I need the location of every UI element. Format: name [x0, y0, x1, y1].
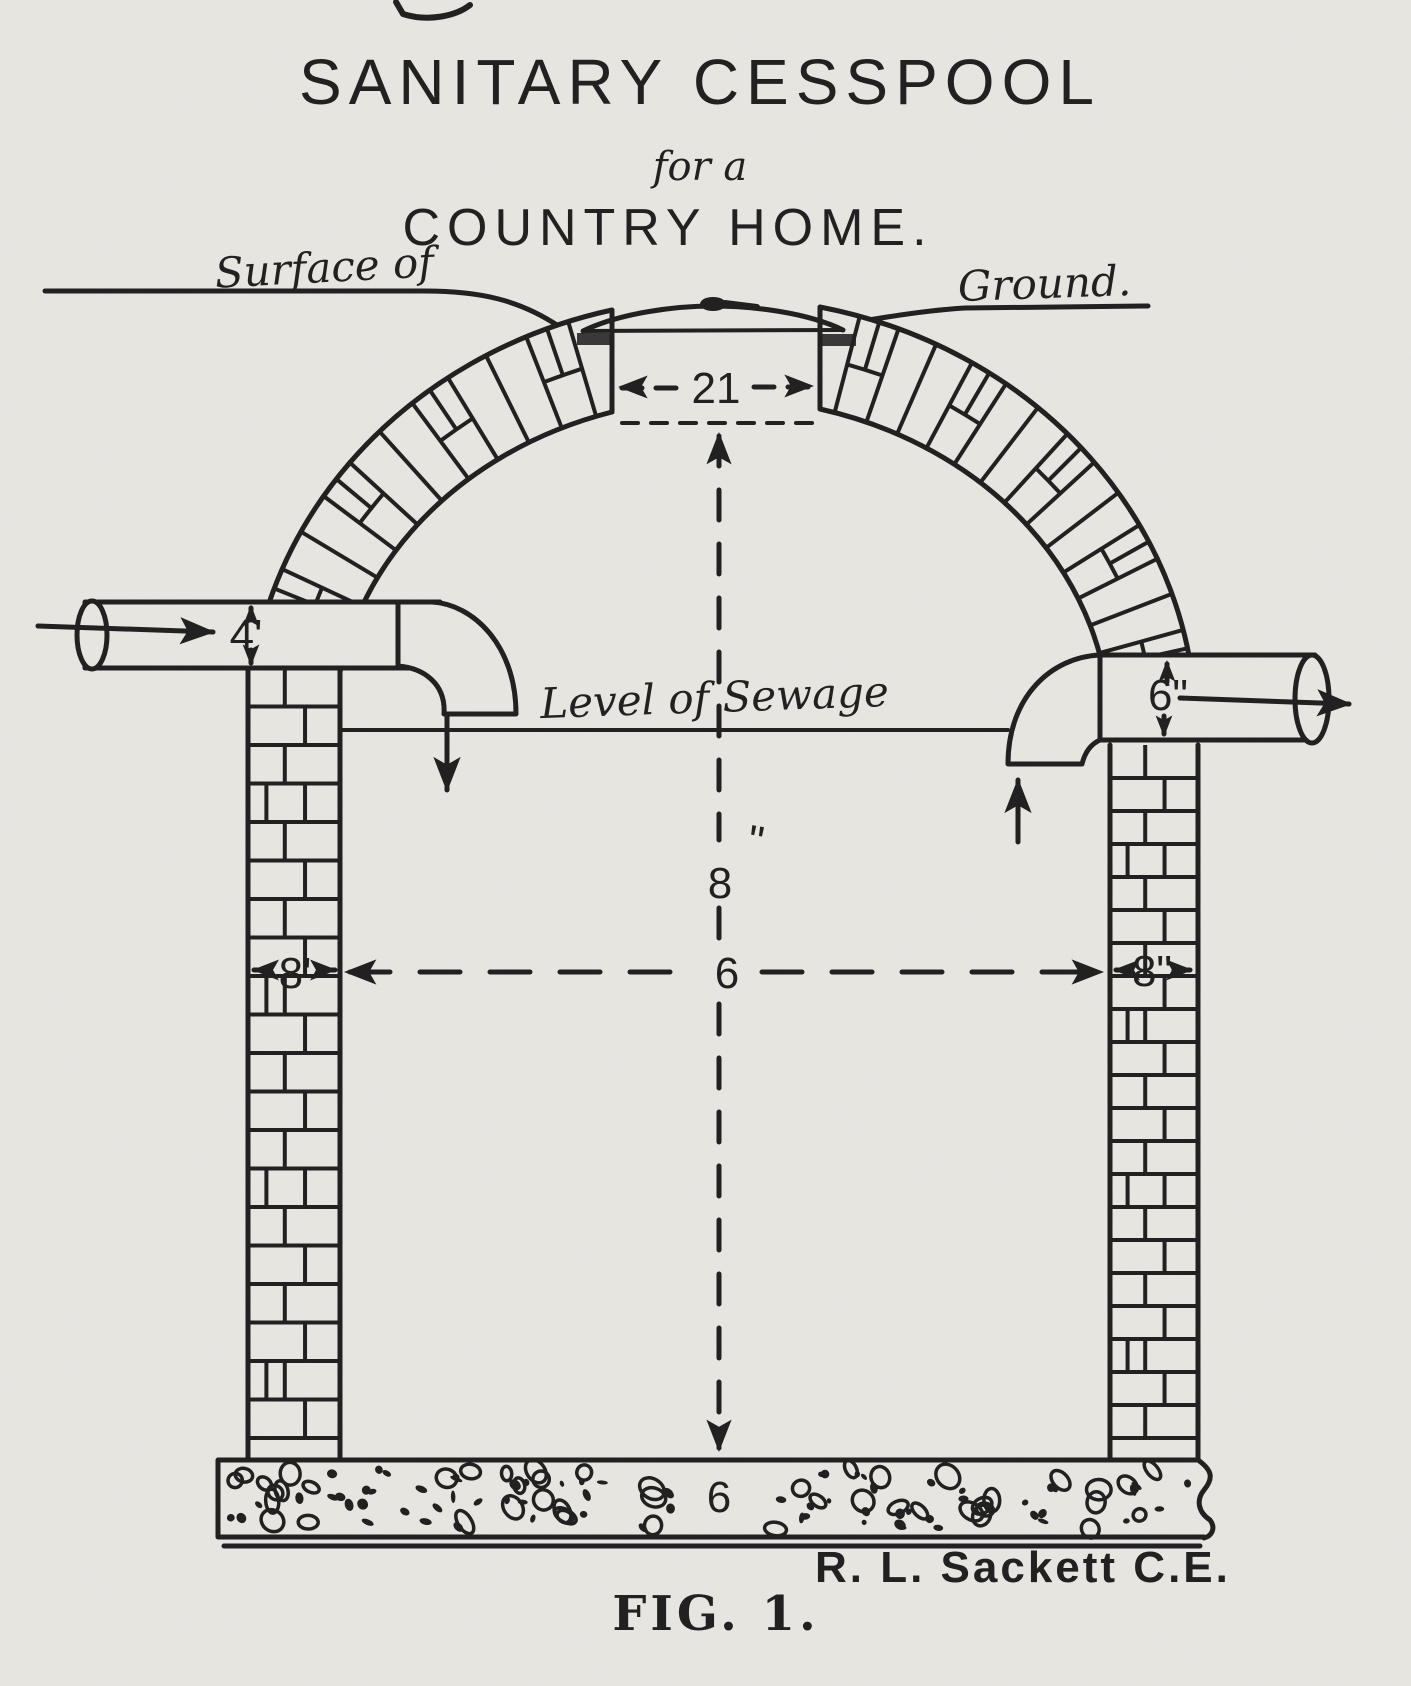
- scanned-figure-page: SANITARY CESSPOOL for a COUNTRY HOME. Su…: [0, 0, 1411, 1686]
- cesspool-diagram: SANITARY CESSPOOL for a COUNTRY HOME. Su…: [0, 0, 1411, 1686]
- paper-grain-overlay: [0, 0, 1411, 1686]
